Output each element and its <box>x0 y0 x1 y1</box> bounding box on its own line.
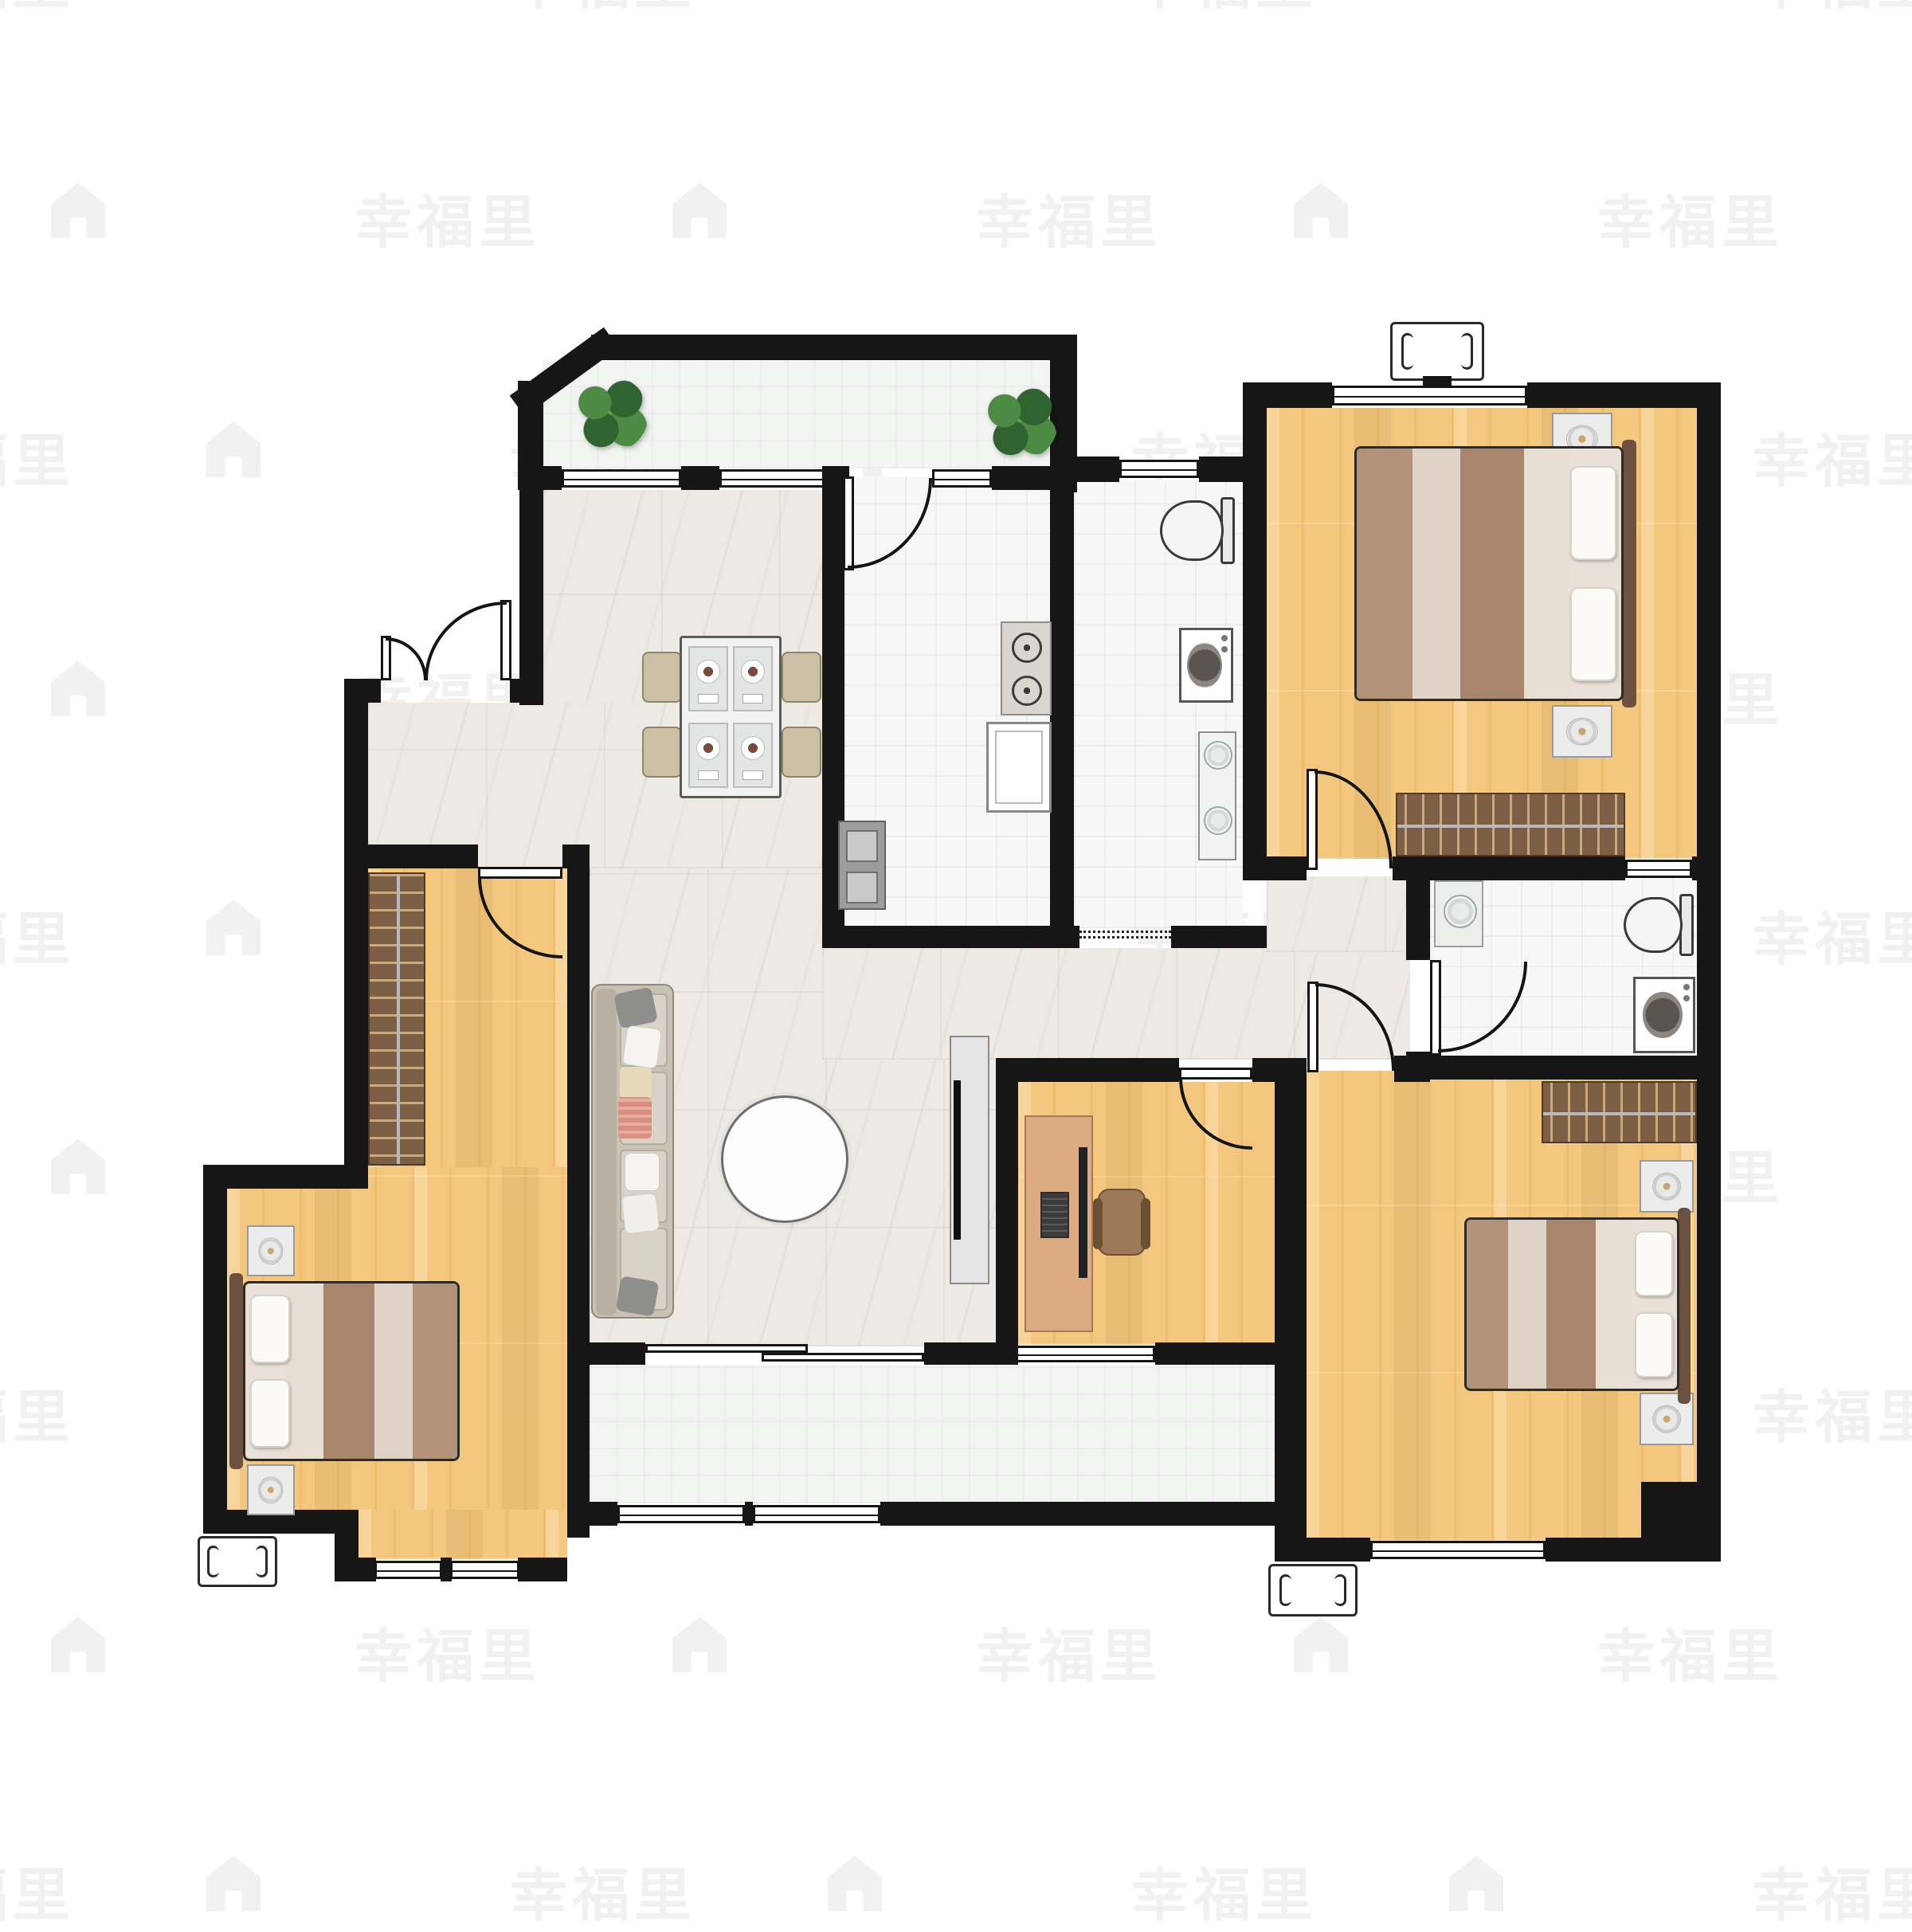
wardrobe-master <box>368 872 425 1166</box>
window-balcony-bottom-b <box>753 1505 880 1523</box>
wall-master-right <box>567 845 590 1538</box>
wall-bed1-top-b <box>1527 382 1721 408</box>
entry-door-arc-large <box>425 602 507 680</box>
dining-chair-3 <box>782 652 821 703</box>
plant-icon-left <box>572 376 648 453</box>
pillow-white-1 <box>622 1025 663 1069</box>
wall-balcony-bottom-b <box>880 1502 1275 1526</box>
nightstand-master-b <box>247 1464 295 1515</box>
wall-study-top-a <box>996 1058 1179 1082</box>
wardrobe-bed2 <box>1542 1081 1697 1143</box>
gas-stove <box>1001 621 1052 715</box>
wall-living-bottom-a <box>567 1342 645 1365</box>
round-rug <box>721 1095 848 1223</box>
toilet-bath2-icon <box>1624 897 1683 953</box>
room-master-lower-strip <box>358 1510 567 1559</box>
wall-study-bed2-divider <box>1275 1058 1307 1538</box>
window-bath-main <box>1119 460 1199 478</box>
wall-left-upper <box>344 679 368 870</box>
opening-bath-main-dashed <box>1079 931 1171 939</box>
pillow-cream <box>620 1067 652 1099</box>
dining-chair-2 <box>642 727 682 778</box>
wall-master-stub <box>335 1510 358 1581</box>
window-dining-a <box>562 469 681 488</box>
window-bed1 <box>1332 386 1527 406</box>
plant-icon-right <box>981 384 1058 460</box>
room-corridor-ext <box>1267 876 1410 952</box>
bed1-headboard <box>1622 440 1636 707</box>
wall-study-bottom <box>1155 1342 1276 1365</box>
window-master-b <box>450 1561 519 1579</box>
window-master-a <box>374 1561 442 1579</box>
wall-vestibule-divider <box>519 466 543 705</box>
tv-icon <box>954 1080 961 1240</box>
wall-bed2-corner-chunk <box>1641 1482 1721 1562</box>
vanity-double-sink <box>1198 731 1236 860</box>
pillow-white-2 <box>625 1153 660 1191</box>
wall-bath-main-top-a <box>1074 457 1119 482</box>
wall-kitchen-bath-bottom-b <box>1171 926 1267 948</box>
bed2-headboard <box>1678 1208 1691 1404</box>
window-balcony-bottom-a <box>617 1505 745 1523</box>
wall-master-top-a <box>344 845 478 868</box>
nightstand-bed2-a <box>1640 1160 1694 1213</box>
pillow-white-3 <box>621 1193 660 1234</box>
master-headboard <box>229 1273 243 1469</box>
ac-unit-bed2 <box>1268 1564 1358 1617</box>
wall-balcony-bottom-a <box>567 1502 617 1526</box>
wall-bed1-left <box>1243 382 1267 880</box>
wardrobe-bed1 <box>1396 793 1625 856</box>
wall-study-left <box>996 1058 1018 1365</box>
sink-bath2 <box>1434 880 1483 947</box>
wall-master-step <box>203 1165 368 1189</box>
wall-master-left-lower <box>203 1189 227 1534</box>
entry-door-arc-small <box>386 637 427 680</box>
wall-living-bottom-b <box>924 1342 996 1365</box>
wall-bed1-bottom-c <box>1692 856 1721 880</box>
dining-chair-4 <box>782 727 821 778</box>
wall-dining-top-b <box>681 466 719 490</box>
wall-bath2-left-a <box>1406 876 1430 960</box>
kitchen-counter-appliance <box>986 722 1052 813</box>
keyboard-icon <box>1040 1192 1069 1238</box>
toilet-main-icon <box>1160 500 1224 561</box>
floor-plan <box>0 0 1912 1912</box>
master-bed <box>243 1281 460 1461</box>
window-study <box>996 1346 1155 1362</box>
pillow-red <box>618 1097 652 1138</box>
wall-bed2-bottom-a <box>1275 1538 1370 1562</box>
wall-right-outer <box>1697 382 1721 1562</box>
wall-bed1-bottom-a <box>1243 856 1307 880</box>
wall-master-bottom-right-b <box>518 1558 567 1581</box>
bed1 <box>1354 446 1624 701</box>
ac-unit-bed1 <box>1390 322 1484 381</box>
pillow-gray-bottom <box>616 1276 660 1317</box>
floorplan-page: { "meta": { "kind": "real-estate floor p… <box>0 0 1912 1912</box>
window-bed2 <box>1370 1541 1546 1559</box>
ac-unit-master <box>198 1536 277 1587</box>
wall-study-top-b <box>1252 1058 1275 1082</box>
wall-balcony-bottom-mid <box>745 1502 753 1526</box>
dining-chair-1 <box>642 652 682 703</box>
washing-machine-main <box>1179 628 1233 703</box>
wall-entry-b <box>510 679 543 703</box>
wall-master-bottom-right-a <box>358 1558 376 1581</box>
sliding-door-panel-b <box>762 1353 924 1362</box>
window-kitchen <box>932 469 992 488</box>
wall-kitchen-bath-divider <box>1050 480 1074 948</box>
monitor-icon <box>1079 1147 1087 1278</box>
window-bath-second <box>1625 860 1692 878</box>
nightstand-master-a <box>247 1225 295 1276</box>
office-chair <box>1098 1189 1146 1256</box>
window-dining-b <box>719 469 835 488</box>
wall-master-left-upper <box>344 868 368 1189</box>
dining-table <box>680 636 782 798</box>
nightstand-bed1-b <box>1552 705 1612 758</box>
washing-machine-bath2 <box>1633 977 1695 1053</box>
kitchen-sink <box>838 821 886 910</box>
bed2 <box>1464 1217 1679 1391</box>
wall-balcony-top <box>591 335 1064 360</box>
sliding-door-panel-a <box>645 1344 808 1353</box>
sofa <box>591 984 674 1319</box>
ac-bed1-bracket <box>1423 376 1452 386</box>
wall-kitchen-bath-bottom-a <box>822 926 1079 948</box>
wall-bath2-bottom <box>1402 1056 1721 1080</box>
room-balcony-bottom <box>590 1365 1275 1503</box>
